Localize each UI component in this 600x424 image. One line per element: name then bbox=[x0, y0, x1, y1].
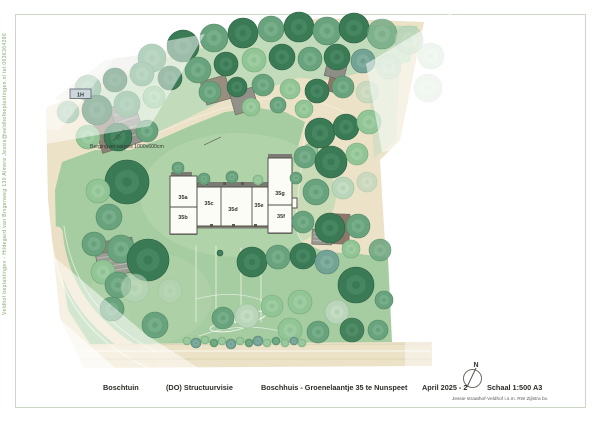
footer-address: Boschhuis - Groenelaantje 35 te Nunspeet bbox=[261, 383, 407, 392]
tree bbox=[278, 318, 302, 342]
north-label: N bbox=[473, 362, 478, 369]
shrub bbox=[218, 337, 226, 345]
tree bbox=[158, 279, 182, 303]
shrub bbox=[281, 339, 289, 347]
tree bbox=[86, 179, 110, 203]
tree bbox=[284, 12, 314, 42]
tree bbox=[214, 52, 238, 76]
tree bbox=[295, 100, 313, 118]
tree bbox=[292, 211, 314, 233]
shrub bbox=[191, 338, 201, 348]
footer-project-title: Boschtuin bbox=[103, 383, 139, 392]
tree bbox=[315, 213, 345, 243]
tree bbox=[307, 321, 329, 343]
house-chimney bbox=[232, 224, 235, 227]
tree bbox=[212, 307, 234, 329]
tree bbox=[324, 44, 350, 70]
shrub bbox=[298, 339, 306, 347]
tree bbox=[242, 98, 260, 116]
shrub bbox=[263, 339, 271, 347]
tree bbox=[252, 74, 274, 96]
tree bbox=[269, 44, 295, 70]
shrub bbox=[226, 339, 236, 349]
tree bbox=[332, 177, 354, 199]
tree bbox=[172, 162, 184, 174]
tree bbox=[82, 232, 106, 256]
tree bbox=[142, 312, 168, 338]
footer-credit: Jessie straathof-Veldhof i.s.m. RW Zijls… bbox=[452, 397, 548, 402]
site-plan: 35a35b35c35d35e35g35fBerging en carport … bbox=[0, 0, 600, 424]
house-unit-label: 35d bbox=[228, 207, 237, 213]
tree bbox=[375, 291, 393, 309]
footer-phase: (DO) Structuurvisie bbox=[166, 383, 233, 392]
house-unit-label: 35a bbox=[178, 195, 188, 201]
tree bbox=[237, 247, 267, 277]
house-block bbox=[170, 176, 197, 234]
house-chimney bbox=[254, 224, 257, 227]
tree bbox=[305, 118, 335, 148]
tree bbox=[346, 143, 368, 165]
tree bbox=[253, 175, 263, 185]
tree bbox=[258, 16, 284, 42]
tree bbox=[261, 295, 283, 317]
tree bbox=[290, 243, 316, 269]
tree bbox=[200, 24, 228, 52]
tree bbox=[242, 48, 266, 72]
tree bbox=[121, 274, 149, 302]
tree bbox=[338, 267, 374, 303]
house-unit-label: 35f bbox=[277, 214, 285, 220]
tree bbox=[298, 47, 322, 71]
tree bbox=[333, 114, 359, 140]
tree bbox=[369, 239, 391, 261]
annotation-text: Berging en carport 1000x600cm bbox=[90, 144, 164, 150]
tree bbox=[315, 146, 347, 178]
shrub bbox=[253, 336, 263, 346]
tree bbox=[227, 77, 247, 97]
footer-date: April 2025 - 2 bbox=[422, 383, 467, 392]
house-chimney bbox=[223, 182, 226, 185]
shrub bbox=[272, 337, 280, 345]
tree bbox=[368, 320, 388, 340]
footer-scale: Schaal 1:500 A3 bbox=[487, 383, 542, 392]
tree bbox=[346, 214, 370, 238]
house-block bbox=[292, 198, 297, 208]
tree bbox=[305, 79, 329, 103]
tree bbox=[199, 81, 221, 103]
tree bbox=[270, 97, 286, 113]
shrub bbox=[183, 337, 191, 345]
tree bbox=[217, 250, 223, 256]
tree bbox=[315, 250, 339, 274]
fade-road-right-end bbox=[405, 340, 436, 368]
house-unit-label: 35g bbox=[275, 191, 284, 197]
tree bbox=[226, 171, 238, 183]
tree bbox=[367, 19, 397, 49]
tree bbox=[198, 173, 210, 185]
shrub bbox=[236, 337, 244, 345]
tree bbox=[339, 13, 369, 43]
tree bbox=[105, 160, 149, 204]
house-unit-label: 35e bbox=[254, 203, 263, 209]
tree bbox=[290, 172, 302, 184]
plot-marker-1h: 1H bbox=[70, 89, 91, 99]
tree bbox=[332, 76, 354, 98]
tree bbox=[294, 146, 316, 168]
shrub bbox=[245, 339, 253, 347]
tree bbox=[280, 79, 300, 99]
tree bbox=[313, 17, 341, 45]
tree bbox=[342, 240, 360, 258]
plan-sheet: Veldhof beplantingen - Hildegard van Bin… bbox=[0, 0, 600, 424]
tree bbox=[228, 18, 258, 48]
tree bbox=[303, 179, 329, 205]
tree bbox=[266, 245, 290, 269]
tree bbox=[357, 172, 377, 192]
house-roof-strip bbox=[268, 154, 292, 158]
house-chimney bbox=[210, 224, 213, 227]
shrub bbox=[290, 337, 298, 345]
shrub bbox=[201, 336, 209, 344]
tree bbox=[235, 304, 259, 328]
tree bbox=[340, 318, 364, 342]
tree bbox=[96, 204, 122, 230]
house-unit-label: 35b bbox=[178, 215, 188, 221]
shrub bbox=[210, 339, 218, 347]
marker-label: 1H bbox=[77, 92, 84, 98]
tree bbox=[288, 290, 312, 314]
house-unit-label: 35c bbox=[204, 201, 213, 207]
house-chimney bbox=[241, 182, 244, 185]
